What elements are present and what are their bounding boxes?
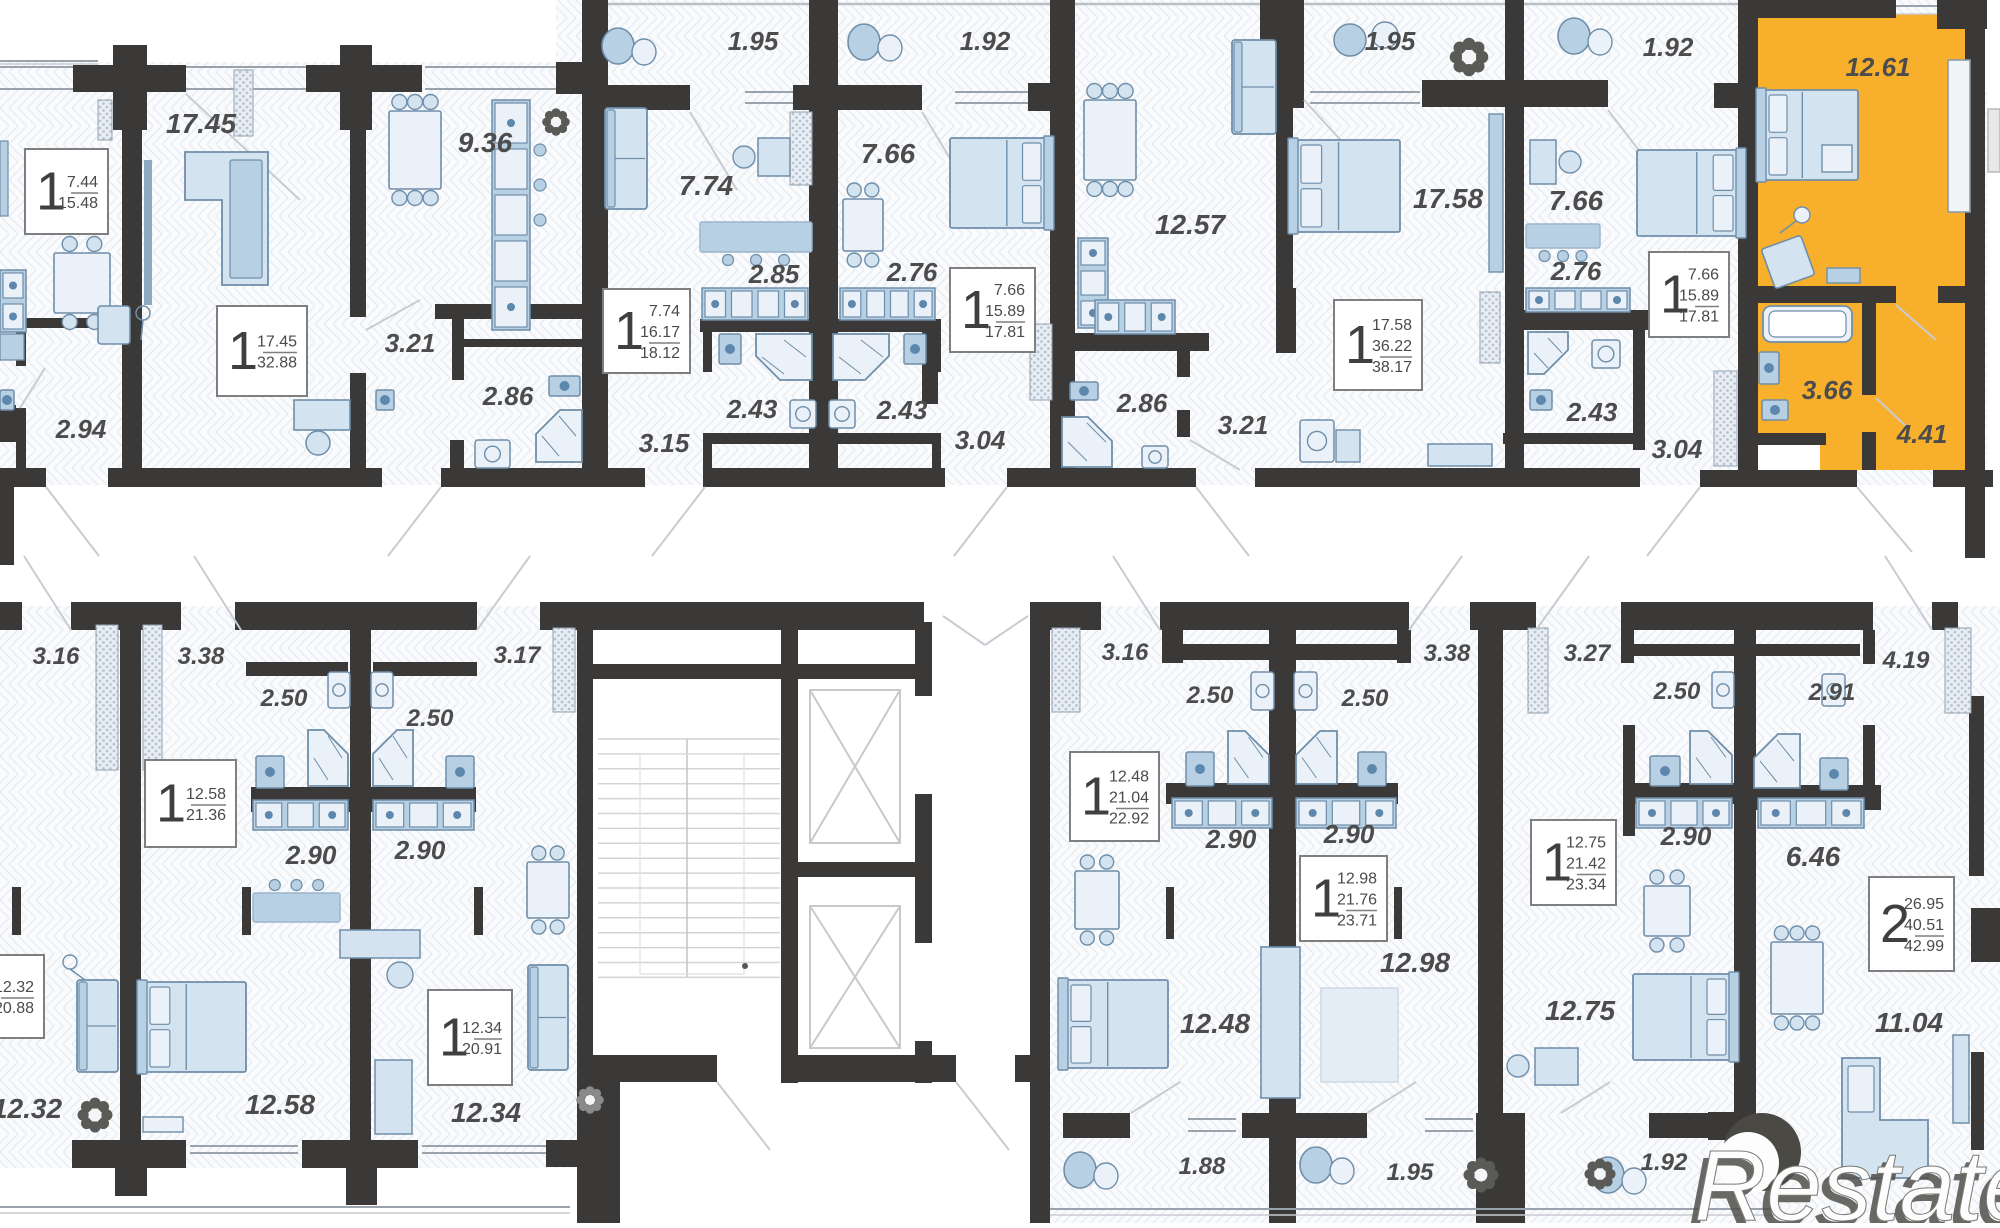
svg-text:40.51: 40.51: [1904, 917, 1944, 934]
svg-text:42.99: 42.99: [1904, 938, 1944, 955]
svg-text:1: 1: [228, 321, 258, 381]
svg-text:12.98: 12.98: [1380, 947, 1450, 978]
svg-text:2.86: 2.86: [1116, 388, 1168, 418]
svg-text:15.48: 15.48: [58, 195, 98, 212]
svg-text:2.91: 2.91: [1808, 679, 1856, 706]
svg-text:1: 1: [36, 162, 66, 222]
svg-text:3.16: 3.16: [33, 643, 80, 670]
svg-text:17.81: 17.81: [1679, 309, 1719, 326]
svg-text:3.16: 3.16: [1102, 639, 1149, 666]
svg-text:21.04: 21.04: [1109, 790, 1149, 807]
svg-text:3.38: 3.38: [1424, 640, 1471, 667]
svg-text:3.21: 3.21: [385, 328, 436, 358]
svg-text:2.90: 2.90: [1205, 824, 1257, 854]
svg-text:17.45: 17.45: [257, 334, 297, 351]
svg-text:12.75: 12.75: [1566, 835, 1606, 852]
svg-text:Restate: Restate: [1694, 1130, 2000, 1223]
svg-text:7.66: 7.66: [994, 282, 1025, 299]
svg-text:17.45: 17.45: [166, 108, 236, 139]
svg-text:2.50: 2.50: [406, 705, 454, 732]
svg-text:1.92: 1.92: [1643, 32, 1694, 62]
svg-text:12.58: 12.58: [245, 1089, 315, 1120]
svg-text:17.58: 17.58: [1413, 183, 1483, 214]
svg-text:12.58: 12.58: [186, 786, 226, 803]
svg-text:15.89: 15.89: [985, 303, 1025, 320]
svg-text:1: 1: [156, 774, 186, 834]
svg-text:1.92: 1.92: [960, 26, 1011, 56]
svg-text:3.21: 3.21: [1218, 410, 1269, 440]
svg-text:1: 1: [1345, 315, 1375, 375]
svg-text:2.94: 2.94: [55, 414, 107, 444]
svg-text:1.95: 1.95: [1387, 1159, 1434, 1186]
svg-text:12.34: 12.34: [451, 1097, 521, 1128]
svg-text:6.46: 6.46: [1786, 841, 1841, 872]
svg-text:15.89: 15.89: [1679, 288, 1719, 305]
svg-text:11.04: 11.04: [1875, 1007, 1943, 1038]
svg-text:3.27: 3.27: [1564, 640, 1612, 667]
svg-text:4.41: 4.41: [1896, 419, 1948, 449]
svg-text:1.95: 1.95: [1365, 26, 1416, 56]
svg-text:12.48: 12.48: [1109, 769, 1149, 786]
svg-text:26.95: 26.95: [1904, 896, 1944, 913]
svg-text:36.22: 36.22: [1372, 338, 1412, 355]
svg-text:7.44: 7.44: [67, 174, 98, 191]
svg-text:2.43: 2.43: [1566, 397, 1618, 427]
svg-text:2.90: 2.90: [394, 835, 446, 865]
svg-text:1: 1: [439, 1008, 469, 1068]
svg-text:23.34: 23.34: [1566, 877, 1606, 894]
svg-text:7.66: 7.66: [861, 138, 916, 169]
svg-text:12.75: 12.75: [1545, 995, 1615, 1026]
svg-text:22.92: 22.92: [1109, 811, 1149, 828]
svg-text:2.86: 2.86: [482, 381, 534, 411]
svg-text:2.50: 2.50: [1341, 685, 1389, 712]
svg-text:7.66: 7.66: [1688, 267, 1719, 284]
svg-text:7.66: 7.66: [1549, 185, 1604, 216]
svg-text:38.17: 38.17: [1372, 359, 1412, 376]
svg-text:2.90: 2.90: [1323, 819, 1375, 849]
svg-text:2.76: 2.76: [886, 257, 938, 287]
svg-text:12.61: 12.61: [1845, 52, 1910, 82]
svg-text:3.38: 3.38: [178, 643, 225, 670]
svg-text:2.50: 2.50: [1186, 682, 1234, 709]
svg-text:20.91: 20.91: [462, 1041, 502, 1058]
svg-text:2.76: 2.76: [1550, 256, 1602, 286]
svg-text:32.88: 32.88: [257, 355, 297, 372]
svg-text:12.34: 12.34: [462, 1020, 502, 1037]
svg-text:2.43: 2.43: [876, 395, 928, 425]
svg-text:1.92: 1.92: [1641, 1149, 1688, 1176]
svg-text:17.81: 17.81: [985, 324, 1025, 341]
svg-text:1.95: 1.95: [728, 26, 779, 56]
svg-text:4.19: 4.19: [1882, 647, 1930, 674]
svg-text:12.98: 12.98: [1337, 871, 1377, 888]
svg-text:20.88: 20.88: [0, 1000, 34, 1017]
svg-text:3.17: 3.17: [494, 642, 542, 669]
svg-text:3.66: 3.66: [1802, 375, 1853, 405]
svg-text:2.43: 2.43: [726, 394, 778, 424]
svg-text:3.04: 3.04: [1652, 434, 1703, 464]
svg-text:7.74: 7.74: [679, 170, 734, 201]
svg-text:21.42: 21.42: [1566, 856, 1606, 873]
svg-text:2.50: 2.50: [260, 685, 308, 712]
svg-text:12.57: 12.57: [1155, 209, 1226, 240]
svg-text:17.58: 17.58: [1372, 317, 1412, 334]
svg-text:2.85: 2.85: [748, 259, 800, 289]
svg-text:12.32: 12.32: [0, 1093, 62, 1124]
svg-text:12.48: 12.48: [1180, 1008, 1250, 1039]
svg-text:1.88: 1.88: [1179, 1153, 1226, 1180]
svg-text:12.32: 12.32: [0, 979, 34, 996]
svg-text:18.12: 18.12: [640, 345, 680, 362]
svg-text:21.36: 21.36: [186, 807, 226, 824]
svg-text:3.15: 3.15: [639, 428, 690, 458]
svg-text:2.90: 2.90: [285, 840, 337, 870]
svg-text:3.04: 3.04: [955, 425, 1006, 455]
svg-text:9.36: 9.36: [458, 127, 513, 158]
svg-text:16.17: 16.17: [640, 324, 680, 341]
svg-text:21.76: 21.76: [1337, 892, 1377, 909]
svg-text:7.74: 7.74: [649, 303, 680, 320]
svg-text:23.71: 23.71: [1337, 913, 1377, 930]
svg-text:1: 1: [1081, 767, 1111, 827]
svg-text:2.90: 2.90: [1660, 821, 1712, 851]
svg-text:2.50: 2.50: [1653, 678, 1701, 705]
